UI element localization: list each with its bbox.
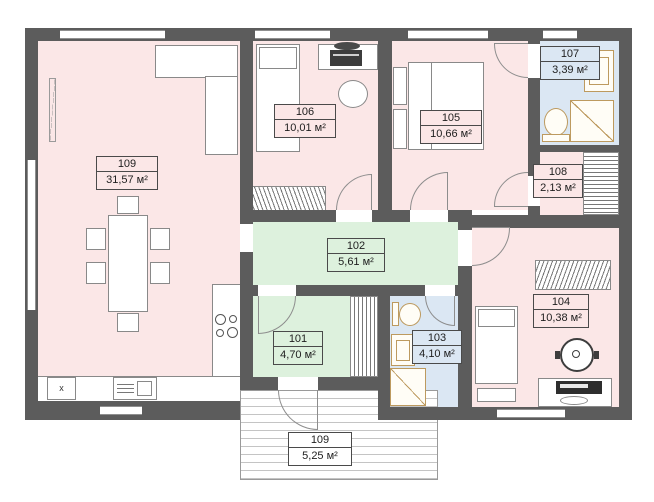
wardrobe-icon-106 [250, 186, 326, 212]
room-number: 103 [413, 331, 461, 346]
dish-rack-icon [117, 381, 134, 396]
room-area: 10,66 м² [421, 126, 481, 143]
room-number: 104 [534, 295, 588, 310]
sink-inner [396, 340, 410, 361]
pot-icon [560, 338, 594, 372]
room-area: 4,70 м² [274, 347, 322, 364]
chair-icon-left-2 [86, 262, 106, 284]
door-leaf-terrace [317, 390, 318, 430]
wall-106-105 [378, 41, 392, 210]
doorway-104 [458, 230, 472, 266]
wall-107-108 [540, 145, 619, 152]
wall-closet-103 [378, 296, 390, 420]
room-label-109: 109 31,57 м² [96, 156, 158, 190]
window-107-top [543, 30, 577, 39]
window-104-bottom [497, 409, 565, 418]
terrace-label: 109 5,25 м² [288, 432, 352, 466]
chair-icon-right-2 [150, 262, 170, 284]
room-area: 10,01 м² [275, 120, 335, 137]
doorway-107 [528, 44, 540, 78]
room-label-108: 108 2,13 м² [533, 164, 583, 198]
doorway-103 [425, 285, 455, 296]
terrace-number: 109 [289, 433, 351, 448]
chair-icon-right-1 [150, 228, 170, 250]
passage-109-102 [240, 224, 253, 252]
door-leaf-101 [258, 296, 259, 334]
room-number: 106 [275, 105, 335, 120]
dining-table-icon [108, 215, 148, 312]
room-label-104: 104 10,38 м² [533, 294, 589, 328]
door-leaf-106 [371, 174, 372, 210]
wall-109-east [240, 41, 253, 377]
pillow-icon-104 [478, 309, 515, 327]
office-chair-icon [338, 80, 368, 108]
room-label-102: 102 5,61 м² [327, 238, 385, 272]
door-leaf-105 [447, 172, 448, 210]
room-number: 107 [541, 47, 599, 62]
doorway-101 [258, 285, 296, 296]
room-area: 10,38 м² [534, 310, 588, 327]
nightstand-icon-105-b [393, 109, 407, 149]
room-area: 5,61 м² [328, 254, 384, 271]
doorway-106 [336, 210, 372, 222]
burner-icon [229, 315, 237, 323]
doorway-terrace [278, 377, 318, 390]
room-label-101: 101 4,70 м² [273, 331, 323, 365]
door-leaf-104 [472, 227, 510, 228]
wardrobe-icon-108 [583, 152, 619, 215]
room-label-103: 103 4,10 м² [412, 330, 462, 364]
keys-line [560, 384, 588, 388]
window-109-top [60, 30, 165, 39]
nightstand-icon-104 [477, 388, 516, 402]
chair-icon-left-1 [86, 228, 106, 250]
window-109-left [27, 160, 36, 310]
stove-icon [214, 312, 240, 348]
burner-icon [227, 327, 238, 338]
pot-handle-right [594, 351, 599, 359]
toilet-tank-icon-103 [392, 302, 399, 326]
room-number: 101 [274, 332, 322, 347]
burner-icon [216, 329, 224, 337]
sink-basin [137, 381, 152, 396]
terrace-area: 5,25 м² [289, 448, 351, 465]
appliance-x-box: x [47, 377, 76, 400]
room-number: 109 [97, 157, 157, 172]
toilet-bowl-icon-103 [399, 303, 421, 326]
pillow-icon-106 [259, 47, 297, 69]
pot-knob [572, 350, 580, 358]
door-leaf-108 [494, 206, 528, 207]
doorway-105 [410, 210, 448, 222]
chair-icon-bottom [117, 313, 139, 332]
window-sash-line [49, 78, 56, 142]
pot-handle-left [555, 351, 560, 359]
door-leaf-107 [494, 43, 528, 44]
nightstand-icon-105-a [393, 67, 407, 105]
room-area: 31,57 м² [97, 172, 157, 189]
room-number: 108 [534, 165, 582, 180]
stool-icon-104 [560, 396, 588, 405]
burner-icon [215, 314, 226, 325]
window-106-top [255, 30, 330, 39]
chair-icon-top [117, 196, 139, 214]
room-area: 3,39 м² [541, 62, 599, 79]
lamp-icon [334, 42, 360, 50]
corner-shower-icon-107 [570, 100, 614, 142]
toilet-tank-icon-107 [542, 134, 570, 142]
room-area: 4,10 м² [413, 346, 461, 363]
room-label-105: 105 10,66 м² [420, 110, 482, 144]
keyboard-instrument-icon [556, 381, 602, 394]
door-leaf-103 [454, 296, 455, 326]
sofa-icon-horizontal [155, 45, 238, 78]
floor-plan: x [0, 0, 654, 502]
printer-icon [330, 50, 362, 66]
wardrobe-icon-104 [535, 260, 611, 290]
closet-hatch-hall [350, 296, 378, 377]
room-label-107: 107 3,39 м² [540, 46, 600, 80]
corner-shower-icon-103 [390, 368, 426, 406]
room-number: 102 [328, 239, 384, 254]
window-105-top [408, 30, 488, 39]
toilet-bowl-icon-107 [544, 108, 568, 136]
room-label-106: 106 10,01 м² [274, 104, 336, 138]
room-number: 105 [421, 111, 481, 126]
printer-detail [333, 54, 359, 56]
appliance-x-label: x [59, 383, 64, 393]
window-kitchen-bottom [100, 406, 142, 415]
kitchen-sink-icon [113, 377, 157, 400]
sofa-icon-vertical [205, 76, 238, 155]
room-area: 2,13 м² [534, 180, 582, 197]
